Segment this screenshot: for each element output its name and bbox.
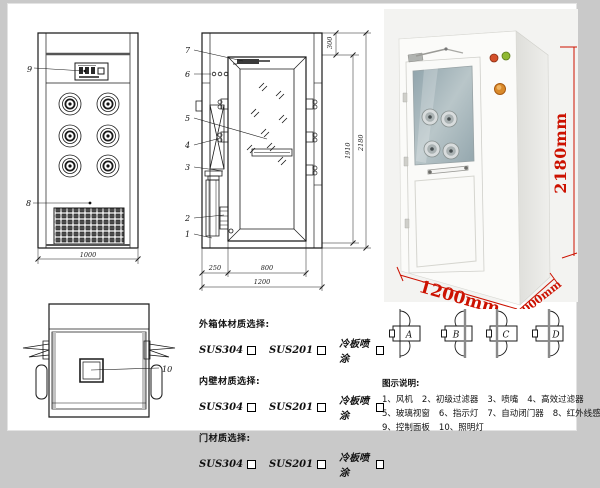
legend-item: 9、控制面板 bbox=[382, 421, 430, 435]
material-checkbox[interactable] bbox=[247, 346, 256, 355]
door-option-c: C bbox=[486, 309, 522, 361]
dim-2180: 2180 bbox=[357, 134, 365, 152]
part-label-9: 9 bbox=[27, 65, 32, 74]
material-checkbox[interactable] bbox=[317, 460, 326, 469]
material-option-label: 冷板喷涂 bbox=[339, 392, 372, 422]
drawing-sheet: 9 8 1000 bbox=[7, 3, 577, 431]
material-options-row: SUS304 SUS201 冷板喷涂 bbox=[199, 392, 384, 422]
door-option-label-c: C bbox=[503, 331, 510, 341]
legend-row: 9、控制面板 10、照明灯 bbox=[382, 421, 582, 435]
material-checkbox[interactable] bbox=[317, 346, 326, 355]
part-label-5: 5 bbox=[185, 114, 190, 123]
door-option-d: D bbox=[532, 309, 568, 361]
material-options-row: SUS304 SUS201 冷板喷涂 bbox=[199, 449, 384, 479]
material-checkbox[interactable] bbox=[376, 346, 384, 355]
material-section-title: 内壁材质选择: bbox=[199, 374, 384, 387]
material-options-row: SUS304 SUS201 冷板喷涂 bbox=[199, 335, 384, 365]
door-view-drawing: 7 6 5 4 3 2 1 300 1910 2180 250 800 1200 bbox=[173, 19, 378, 294]
legend-row: 5、玻璃视窗 6、指示灯 7、自动闭门器 8、红外线感应器 bbox=[382, 407, 582, 421]
material-option-label: SUS201 bbox=[269, 459, 313, 470]
material-checkbox[interactable] bbox=[376, 460, 384, 469]
legend-item: 10、照明灯 bbox=[439, 421, 484, 435]
legend-title: 图示说明: bbox=[382, 377, 582, 389]
material-option-label: SUS201 bbox=[269, 345, 313, 356]
legend-row: 1、风机 2、初级过滤器 3、喷嘴 4、高效过滤器 bbox=[382, 393, 582, 407]
legend: 图示说明: 1、风机 2、初级过滤器 3、喷嘴 4、高效过滤器 5、玻璃视窗 6… bbox=[382, 377, 582, 435]
legend-item: 2、初级过滤器 bbox=[422, 393, 478, 407]
material-option-label: SUS304 bbox=[199, 345, 243, 356]
part-label-4: 4 bbox=[184, 141, 190, 150]
material-option-label: SUS201 bbox=[269, 402, 313, 413]
cabinet-side-face bbox=[516, 31, 550, 305]
spec-sheet-page: { "page": {"background": "#c9c9c9", "pap… bbox=[0, 0, 600, 450]
material-selection: 外箱体材质选择: SUS304 SUS201 冷板喷涂 内壁材质选择: SUS3… bbox=[199, 317, 384, 488]
part-label-6: 6 bbox=[185, 70, 190, 79]
dim-300: 300 bbox=[326, 37, 334, 49]
air-return-grille bbox=[54, 208, 124, 244]
dim-800: 800 bbox=[261, 264, 273, 272]
part-label-8: 8 bbox=[26, 199, 31, 208]
part-label-2: 2 bbox=[184, 214, 190, 223]
front-view-drawing: 9 8 1000 bbox=[19, 27, 149, 272]
door-option-b: B bbox=[441, 309, 477, 361]
material-option-label: SUS304 bbox=[199, 459, 243, 470]
material-option-label: 冷板喷涂 bbox=[339, 335, 372, 365]
legend-item: 4、高效过滤器 bbox=[527, 393, 583, 407]
part-label-10: 10 bbox=[162, 365, 172, 374]
left-handle-symbol bbox=[36, 365, 47, 399]
door-option-label-d: D bbox=[551, 331, 559, 341]
legend-item: 1、风机 bbox=[382, 393, 413, 407]
part-label-1: 1 bbox=[185, 230, 190, 239]
part-label-7: 7 bbox=[185, 46, 191, 55]
photo-indicator-red bbox=[490, 54, 498, 62]
material-checkbox[interactable] bbox=[247, 460, 256, 469]
material-section-title: 门材质选择: bbox=[199, 431, 384, 444]
part-label-3: 3 bbox=[185, 163, 190, 172]
legend-item: 3、喷嘴 bbox=[487, 393, 518, 407]
legend-item: 6、指示灯 bbox=[439, 407, 478, 421]
door-option-label-b: B bbox=[452, 331, 460, 341]
material-section-title: 外箱体材质选择: bbox=[199, 317, 384, 330]
photo-dim-height: 2180mm bbox=[551, 112, 570, 193]
legend-item: 7、自动闭门器 bbox=[487, 407, 543, 421]
dim-250: 250 bbox=[208, 264, 221, 272]
photo-indicator-green bbox=[502, 52, 510, 60]
dim-1910: 1910 bbox=[344, 142, 352, 159]
legend-item: 5、玻璃视窗 bbox=[382, 407, 430, 421]
product-photo: 2180mm 1200mm 1000mm bbox=[384, 9, 578, 309]
door-option-label-a: A bbox=[405, 331, 413, 341]
dim-1000: 1000 bbox=[80, 251, 97, 259]
right-handle-symbol bbox=[151, 365, 162, 399]
material-checkbox[interactable] bbox=[247, 403, 256, 412]
material-option-label: SUS304 bbox=[199, 402, 243, 413]
legend-item: 8、红外线感应器 bbox=[553, 407, 600, 421]
dim-1200: 1200 bbox=[254, 278, 271, 286]
top-view-drawing: 10 bbox=[9, 297, 184, 432]
material-option-label: 冷板喷涂 bbox=[339, 449, 372, 479]
material-checkbox[interactable] bbox=[317, 403, 326, 412]
door-option-a: A bbox=[389, 309, 425, 361]
